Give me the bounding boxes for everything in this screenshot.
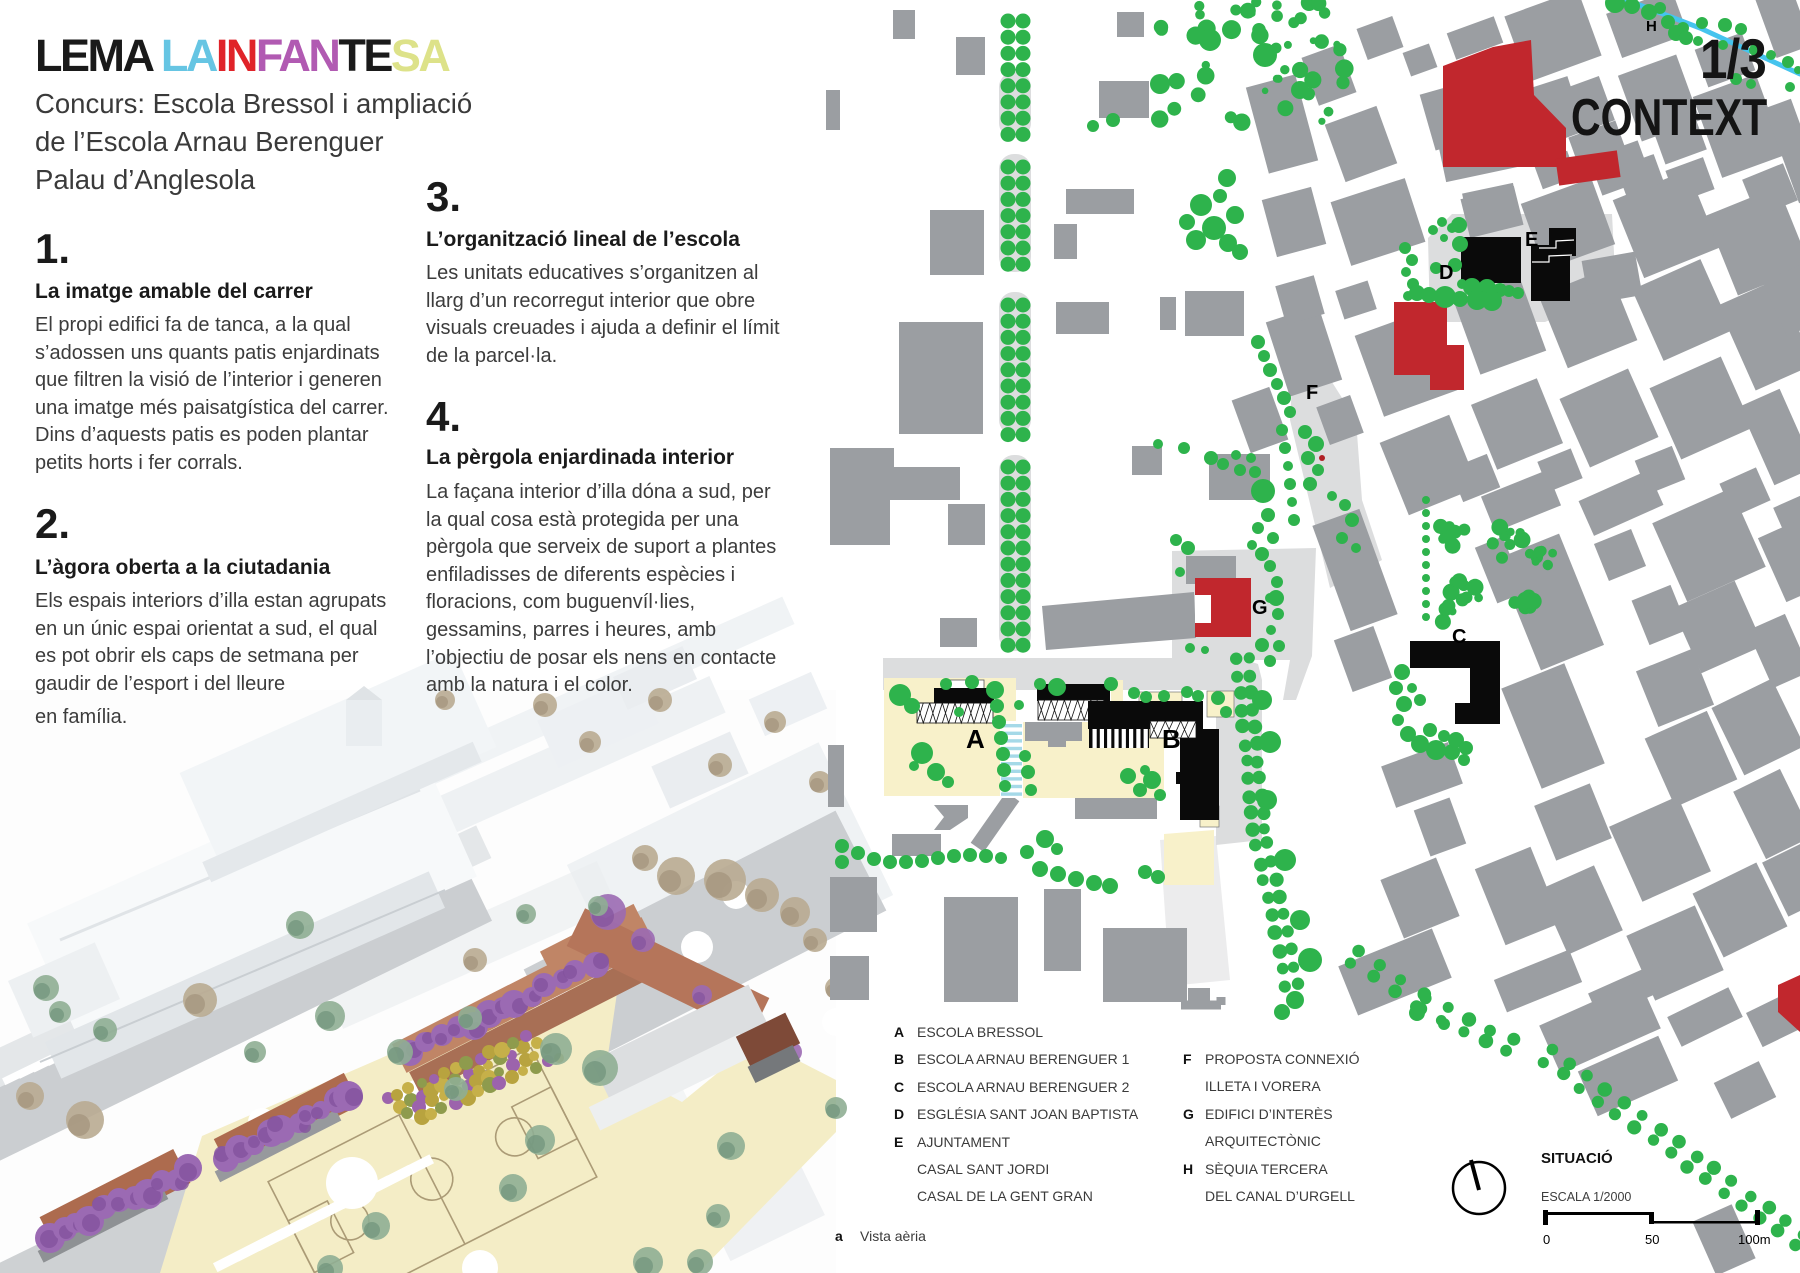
svg-text:H: H — [1646, 18, 1657, 35]
svg-text:100m: 100m — [1738, 1232, 1771, 1247]
svg-text:E: E — [1525, 229, 1538, 251]
svg-text:F: F — [1306, 382, 1318, 404]
svg-text:A: A — [966, 724, 985, 754]
svg-text:0: 0 — [1543, 1232, 1550, 1247]
svg-text:G: G — [1252, 597, 1268, 619]
svg-text:B: B — [1162, 724, 1181, 754]
svg-text:D: D — [1439, 262, 1453, 284]
svg-text:50: 50 — [1645, 1232, 1659, 1247]
svg-text:C: C — [1452, 626, 1466, 648]
